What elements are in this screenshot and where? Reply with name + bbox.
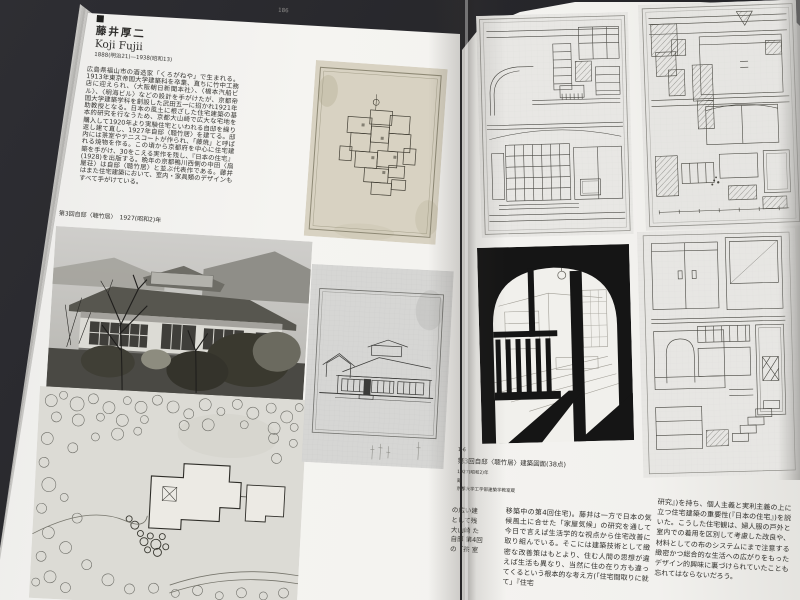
floor-plan-drawing	[304, 60, 448, 245]
body-text-column-2: 研究』)を持ち、個人主義と実利主義の上に立つ住宅建築の重要性(『日本の住宅』)を…	[653, 497, 792, 600]
interior-elevation-drawing-c	[637, 228, 800, 478]
book-photo: 186 藤井厚二 Koji Fujii 1888(明治21)—1938(昭和13…	[0, 0, 800, 600]
body-text-column-1: 移築中の第4回住宅)。藤井は一方で日本の気候風土に合せた「家屋気候」の研究を通し…	[501, 506, 651, 600]
site-plan-drawing	[29, 386, 308, 600]
page-edges-right	[778, 0, 800, 480]
page-number: 186	[278, 8, 289, 15]
house-exterior-photo	[46, 226, 312, 403]
architect-header: 藤井厚二 Koji Fujii 1888(明治21)—1938(昭和13)	[94, 15, 175, 64]
square-bullet-icon	[97, 15, 104, 22]
biography-text: 広島県福山市の酒造家「くろがねや」で生まれる。1913年東京帝国大学建築科を卒業…	[79, 66, 240, 192]
interior-elevation-drawing-b	[638, 0, 800, 231]
spine-highlight	[465, 0, 468, 600]
